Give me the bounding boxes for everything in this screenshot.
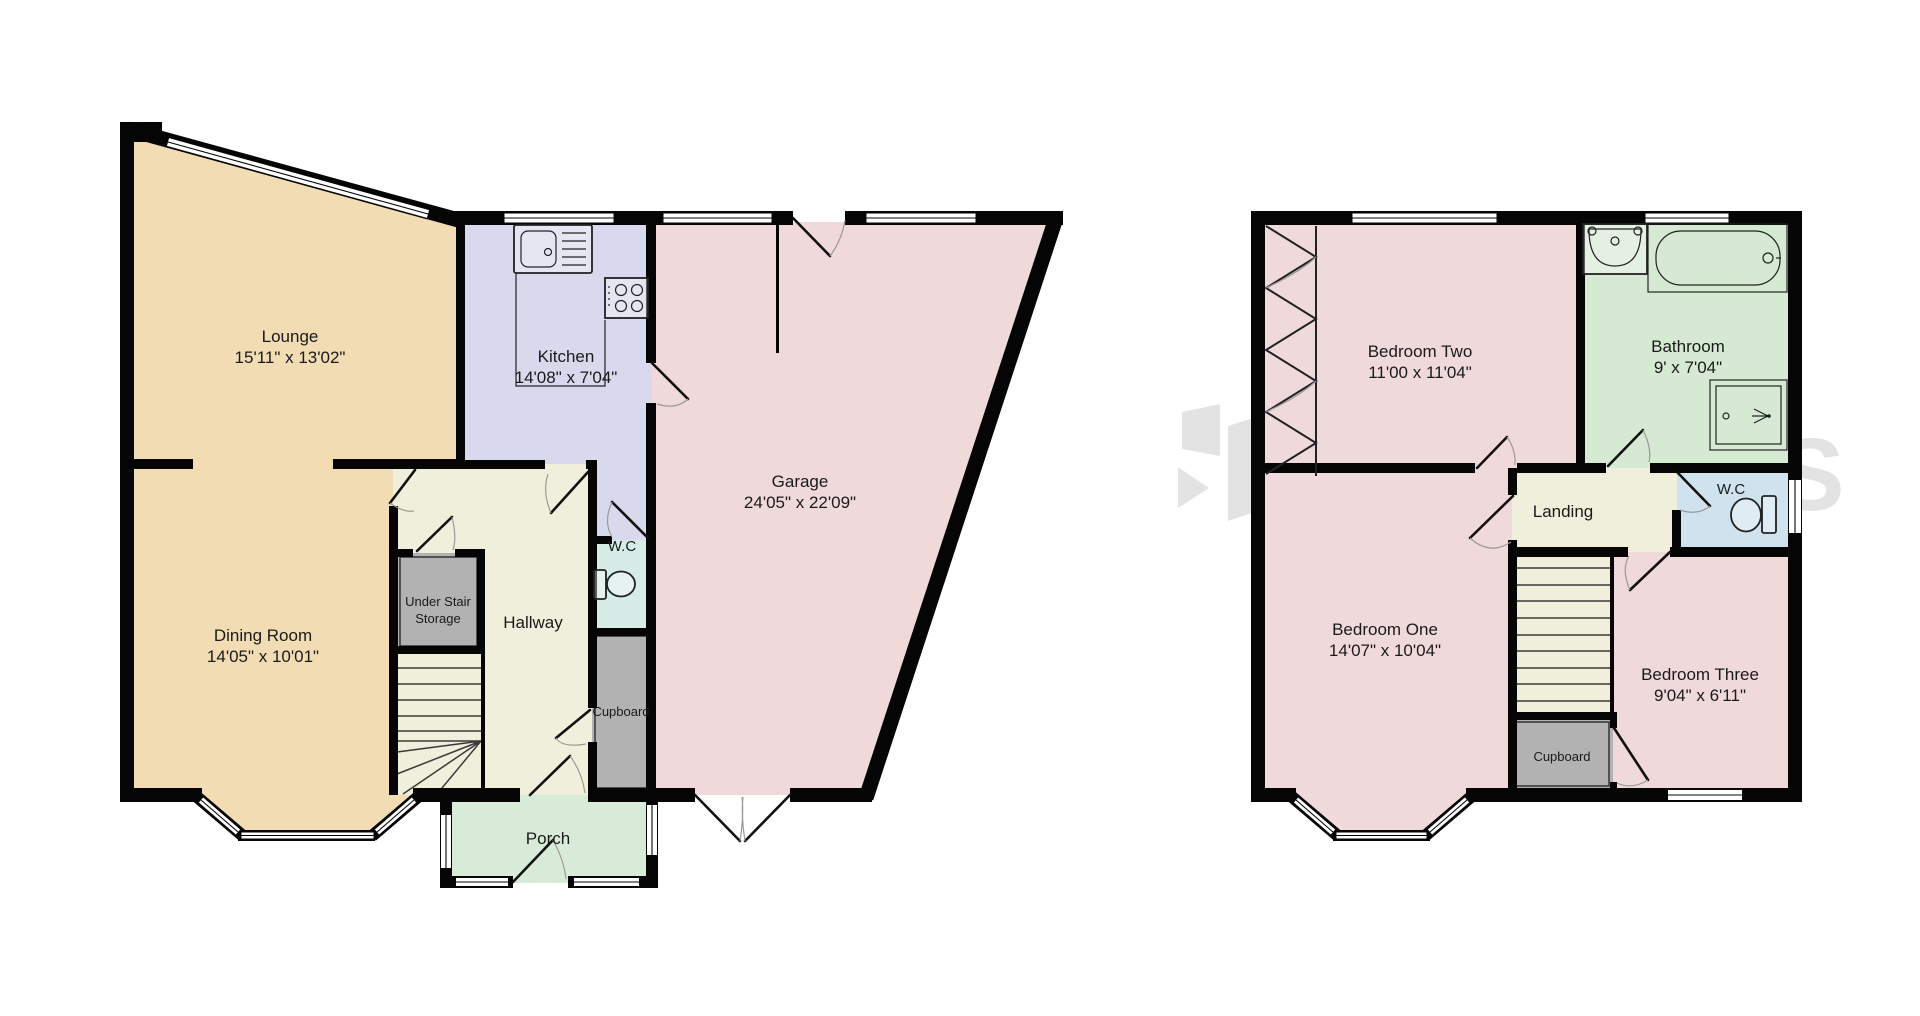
lounge-dims: 15'11" x 13'02": [235, 348, 346, 367]
wc-first-window: [1789, 480, 1801, 533]
bedroom-two-window: [1351, 212, 1498, 224]
bedroom-two-label: Bedroom Two: [1368, 342, 1473, 361]
bedroom-two-dims: 11'00 x 11'04": [1368, 363, 1472, 382]
dining-dims: 14'05" x 10'01": [207, 647, 319, 666]
porch-label: Porch: [526, 829, 570, 848]
garage-dims: 24'05" x 22'09": [744, 493, 856, 512]
kitchen-window: [503, 212, 615, 224]
bathroom-label: Bathroom: [1651, 337, 1725, 356]
cupboard-ground-label: Cupboard: [592, 704, 649, 719]
ground-floor-plan: Lounge 15'11" x 13'02" Kitchen 14'08" x …: [120, 122, 1063, 888]
wc-ground-label: W.C: [608, 538, 636, 555]
bedroom-one-label: Bedroom One: [1332, 620, 1438, 639]
bedroom-one-dims: 14'07" x 10'04": [1329, 641, 1441, 660]
toilet-first-icon: [1731, 496, 1776, 533]
garage-window-right: [865, 212, 977, 224]
kitchen-label: Kitchen: [538, 347, 595, 366]
kitchen-dims: 14'08" x 7'04": [515, 368, 618, 387]
bathroom-sink-icon: [1583, 224, 1647, 274]
garage-window-left: [662, 212, 773, 224]
hortons-logo-icon: [1182, 404, 1220, 456]
bedroom-three-label: Bedroom Three: [1641, 665, 1759, 684]
toilet-ground-icon: [594, 570, 635, 599]
staircase-ground: [397, 654, 485, 794]
dining-label: Dining Room: [214, 626, 312, 645]
kitchen-sink-icon: [514, 225, 592, 273]
garage-label: Garage: [772, 472, 829, 491]
bathroom-window: [1644, 212, 1730, 224]
bedroom-three-window: [1668, 790, 1742, 800]
under-stair-label-2: Storage: [415, 611, 461, 626]
floorplan-drawing: HORTONS HORTONS: [0, 0, 1920, 1016]
first-floor-plan: Bedroom Two 11'00 x 11'04" Bathroom 9' x…: [1251, 211, 1802, 841]
bathroom-dims: 9' x 7'04": [1654, 358, 1722, 377]
garage-double-doors: [695, 795, 790, 841]
under-stair-label-1: Under Stair: [405, 594, 471, 609]
kitchen-hob-icon: [605, 278, 648, 318]
cupboard-first-label: Cupboard: [1533, 749, 1590, 764]
lounge-label: Lounge: [262, 327, 319, 346]
floorplan-page: HORTONS HORTONS: [0, 0, 1920, 1016]
garage-partition-line: [776, 225, 779, 353]
wc-first-label: W.C: [1717, 481, 1745, 498]
bedroom-three-dims: 9'04" x 6'11": [1654, 686, 1746, 705]
landing-label: Landing: [1533, 502, 1594, 521]
hallway-label: Hallway: [503, 613, 563, 632]
